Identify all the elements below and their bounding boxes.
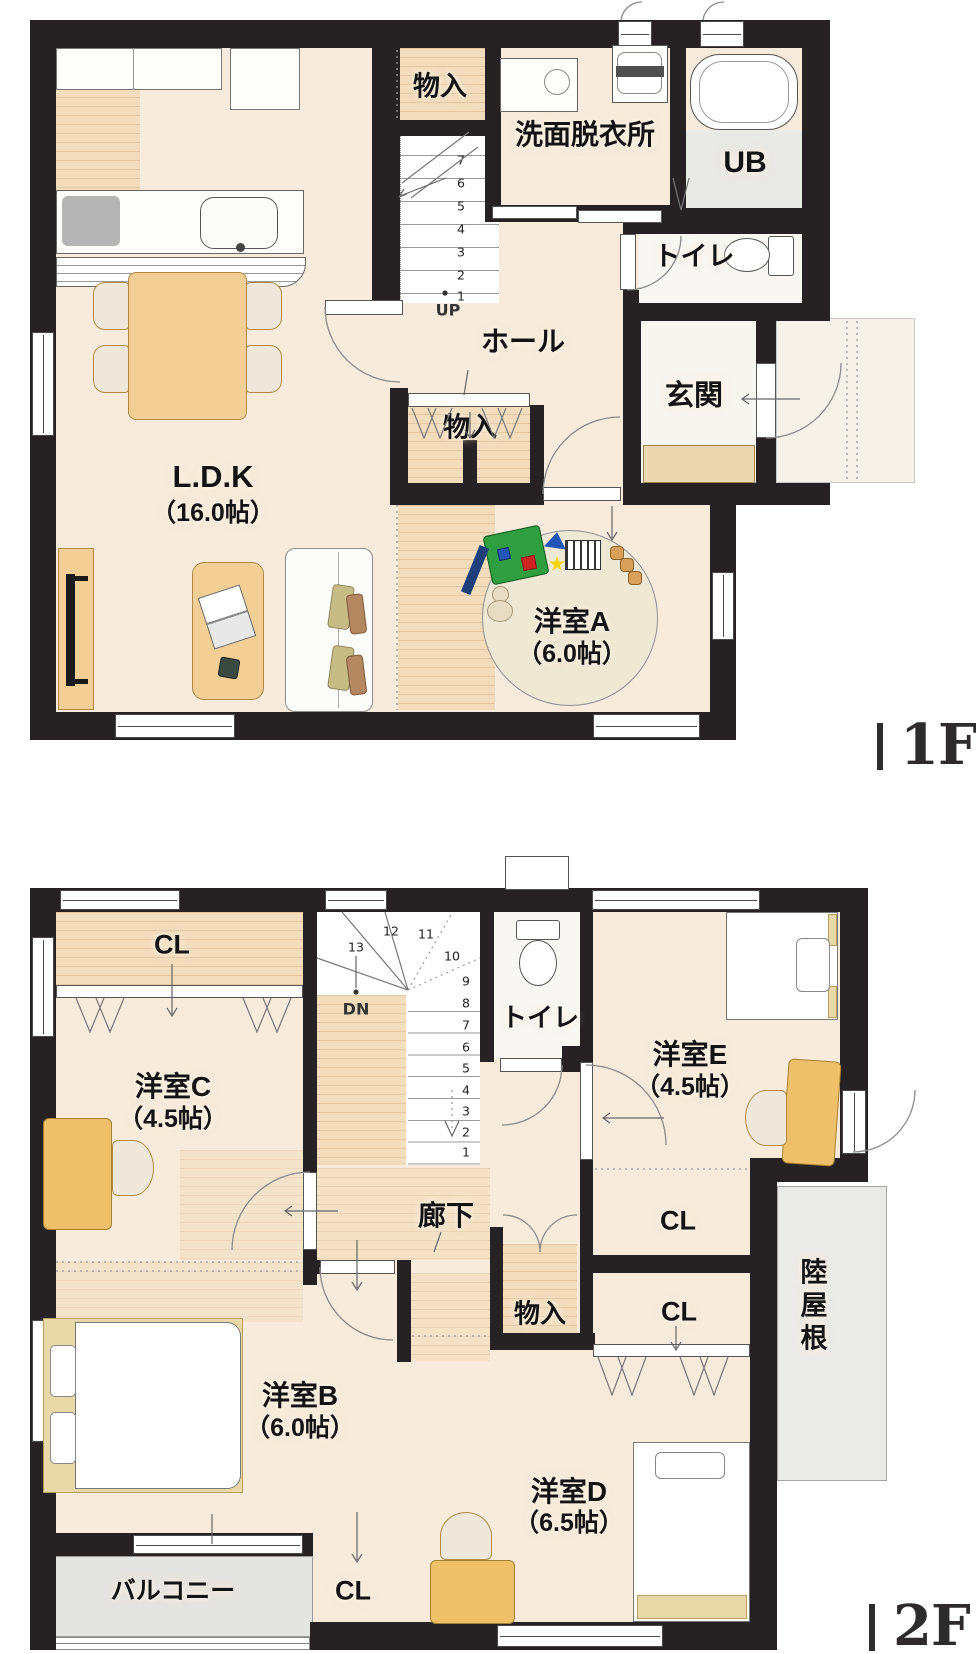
- stair-number: 10: [444, 949, 460, 964]
- floor-tag-bar-2f: [869, 1604, 875, 1651]
- washer-drum: [544, 69, 570, 95]
- wall-segment: [303, 1250, 317, 1285]
- window-arc: [703, 2, 724, 20]
- table-item: [217, 656, 240, 679]
- room-label-ub: UB: [723, 146, 766, 180]
- wall-segment: [397, 1260, 411, 1362]
- wall-segment: [485, 48, 501, 208]
- vanity-band: [616, 66, 664, 77]
- wall-segment: [490, 1227, 503, 1342]
- sliding-door-senmen: [492, 206, 577, 219]
- toy-caterpillar: [628, 571, 642, 585]
- faucet: [236, 243, 245, 252]
- stair-number: 7: [462, 1018, 470, 1033]
- room-label-room-e-size: （4.5帖）: [635, 1067, 745, 1103]
- stair-number: 2: [457, 268, 465, 283]
- closet-rail-cl-lower: [593, 1344, 750, 1357]
- door-leaf-room-a: [543, 487, 621, 501]
- toilet-cistern-2f: [516, 920, 560, 940]
- wall-segment: [372, 48, 400, 300]
- stove: [62, 196, 120, 246]
- wall-segment: [750, 1158, 777, 1650]
- window: [32, 937, 54, 1037]
- door-leaf-toilet-2f: [500, 1058, 562, 1072]
- room-label-cl-b: CL: [335, 1576, 371, 1607]
- room-label-hall: ホール: [481, 320, 565, 360]
- window: [700, 21, 744, 47]
- door-leaf-genkan: [756, 363, 776, 438]
- pillow-room-d: [655, 1452, 725, 1479]
- dining-chair: [93, 282, 129, 330]
- stair-number: 11: [418, 927, 434, 942]
- stair-number: 9: [462, 974, 470, 989]
- window: [592, 890, 760, 910]
- wall-segment: [580, 1160, 593, 1342]
- pillow-room-b: [50, 1345, 76, 1397]
- stairs-dn-label: DN: [343, 1000, 370, 1019]
- wall-segment: [580, 1015, 593, 1065]
- window: [593, 714, 700, 738]
- refrigerator: [230, 48, 300, 110]
- room-label-monoire-2f: 物入: [514, 1294, 566, 1331]
- floor-tag-bar-1f: [877, 723, 883, 770]
- wall-segment: [530, 405, 544, 505]
- toilet-bowl-2f: [519, 940, 557, 986]
- stair-number: 2: [462, 1125, 470, 1140]
- window: [842, 1090, 866, 1154]
- window: [32, 332, 54, 436]
- toilet-cistern: [768, 236, 794, 276]
- wall-segment: [623, 321, 641, 483]
- chair-room-d: [440, 1512, 492, 1560]
- floor-room-a-band: [398, 505, 495, 710]
- room-label-genkan: 玄関: [665, 372, 723, 414]
- door-leaf-room-b: [320, 1260, 395, 1274]
- room-label-monoire-mid: 物入: [443, 406, 497, 445]
- stair-number: 6: [457, 176, 465, 191]
- door-leaf-ldk: [325, 300, 403, 315]
- door-leaf-toilet-1f: [620, 234, 636, 290]
- bed-room-b-duvet: [75, 1322, 241, 1489]
- room-label-cl-upper: CL: [660, 1206, 696, 1237]
- window: [497, 1625, 663, 1647]
- dining-chair: [93, 345, 129, 393]
- window: [115, 714, 235, 738]
- sliding-door-senmen: [578, 210, 662, 223]
- wall-segment: [756, 438, 776, 483]
- stair-number: 5: [457, 199, 465, 214]
- room-label-ldk-size: （16.0帖）: [151, 493, 275, 529]
- toy-easel: [565, 540, 601, 570]
- bay-window: [505, 856, 569, 890]
- floor-porch: [776, 318, 915, 483]
- room-label-room-c-size: （4.5帖）: [118, 1099, 228, 1135]
- room-label-toilet-2f: トイレ: [501, 998, 579, 1035]
- room-label-room-b-size: （6.0帖）: [245, 1408, 355, 1444]
- toy-caterpillar: [620, 558, 634, 572]
- room-label-ldk: L.D.K: [173, 459, 254, 495]
- floor-c-corner: [180, 1150, 303, 1260]
- window: [60, 890, 180, 910]
- room-label-cl-lower: CL: [661, 1297, 697, 1328]
- room-label-room-a-size: （6.0帖）: [517, 634, 627, 670]
- wall-segment: [480, 888, 494, 1062]
- floor-kitchen-corner: [56, 88, 140, 192]
- teddy-bear-body: [487, 600, 513, 622]
- tv: [66, 574, 75, 686]
- floorplan-canvas: 7 6 5 4 3 2 1 UP 物入 洗面脱衣所 UB トイレ ホール 玄関 …: [0, 0, 976, 1654]
- room-label-monoire-top: 物入: [413, 65, 467, 104]
- sliding-window-balcony: [133, 1535, 303, 1554]
- wall-segment: [390, 388, 408, 505]
- window-arc: [621, 2, 642, 20]
- floor-d-entry: [410, 1273, 490, 1361]
- door-leaf-room-e: [580, 1062, 593, 1160]
- chair-room-e: [745, 1090, 787, 1146]
- kitchen-cabinet: [56, 48, 222, 90]
- stair-number: 6: [462, 1040, 470, 1055]
- toy-house-door: [521, 555, 538, 572]
- tv: [74, 679, 88, 684]
- chair-room-c: [112, 1140, 154, 1196]
- wall-segment: [593, 1255, 750, 1273]
- wall-segment: [623, 303, 830, 321]
- bed-room-e-frame: [828, 986, 837, 1018]
- balcony-rail: [30, 1637, 310, 1650]
- stair-number: 4: [457, 222, 465, 237]
- room-label-room-d-size: （6.5帖）: [514, 1503, 624, 1539]
- stair-number: 4: [462, 1083, 470, 1098]
- window: [712, 572, 734, 640]
- stair-number: 7: [457, 153, 465, 168]
- stair-number: 3: [457, 245, 465, 260]
- window: [325, 890, 387, 910]
- bed-room-d-frame: [637, 1595, 747, 1619]
- wall-segment: [463, 440, 477, 483]
- door-leaf-room-c: [303, 1172, 317, 1250]
- stair-number: 12: [383, 924, 399, 939]
- tv-board: [58, 548, 94, 710]
- closet-rail-cl-c: [56, 985, 303, 998]
- window: [618, 21, 652, 47]
- stair-number: 1: [462, 1145, 470, 1160]
- room-label-rouka: 廊下: [418, 1194, 474, 1234]
- wall-segment: [303, 912, 317, 1172]
- dining-table: [128, 272, 247, 420]
- wall-segment: [670, 48, 686, 208]
- pillow-room-e: [796, 938, 830, 992]
- wall-segment: [390, 483, 543, 505]
- desk-room-c: [43, 1118, 112, 1230]
- wall-segment: [802, 20, 830, 320]
- bathtub-inner: [699, 61, 789, 123]
- wall-segment: [490, 1333, 595, 1350]
- wall-segment: [623, 290, 639, 303]
- room-label-cl-c: CL: [154, 930, 190, 961]
- desk-room-e: [781, 1058, 841, 1166]
- floor-tag-1f: 1F: [900, 712, 976, 778]
- floor-tag-2f: 2F: [893, 1593, 970, 1654]
- stair-number: 5: [462, 1061, 470, 1076]
- desk-room-d: [430, 1560, 515, 1624]
- shoe-cabinet: [643, 445, 755, 483]
- stairs-up-label: UP: [436, 301, 461, 320]
- floor-b-band: [56, 1262, 303, 1322]
- stair-number: 3: [462, 1104, 470, 1119]
- stair-number: 13: [348, 940, 364, 955]
- room-label-senmen: 洗面脱衣所: [515, 113, 655, 153]
- room-label-balcony: バルコニー: [111, 1571, 236, 1607]
- kitchen-sink: [200, 197, 278, 249]
- pillow-room-b: [50, 1412, 76, 1464]
- dining-chair: [246, 345, 282, 393]
- stair-landing-2f: [317, 995, 406, 1165]
- dining-chair: [246, 282, 282, 330]
- stair-number: 8: [462, 996, 470, 1011]
- room-label-rikuyane: 陸屋根: [793, 1258, 832, 1357]
- tv: [74, 576, 88, 581]
- kitchen-cabinet-divider: [133, 48, 134, 90]
- room-label-toilet-1f: トイレ: [654, 235, 735, 274]
- wall-segment: [756, 321, 776, 363]
- toy-house-window: [497, 547, 511, 561]
